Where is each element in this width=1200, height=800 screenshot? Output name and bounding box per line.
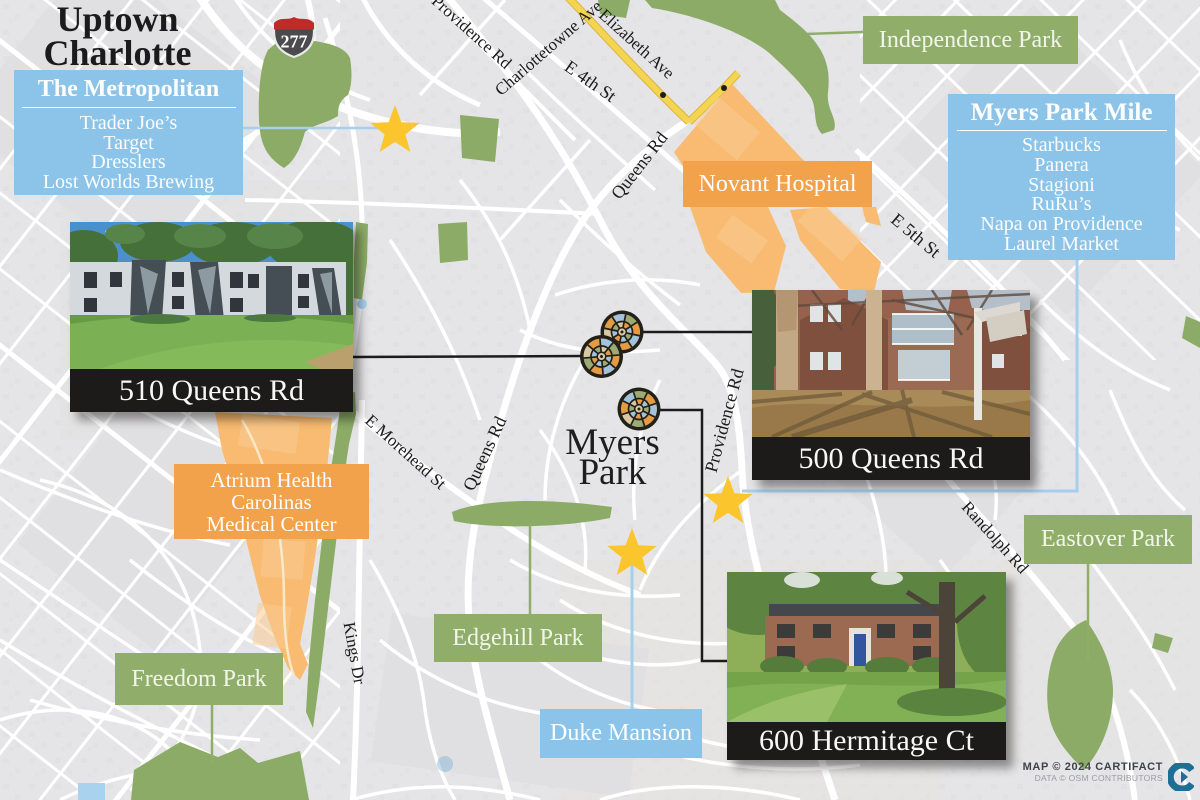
svg-text:277: 277 — [281, 32, 308, 52]
